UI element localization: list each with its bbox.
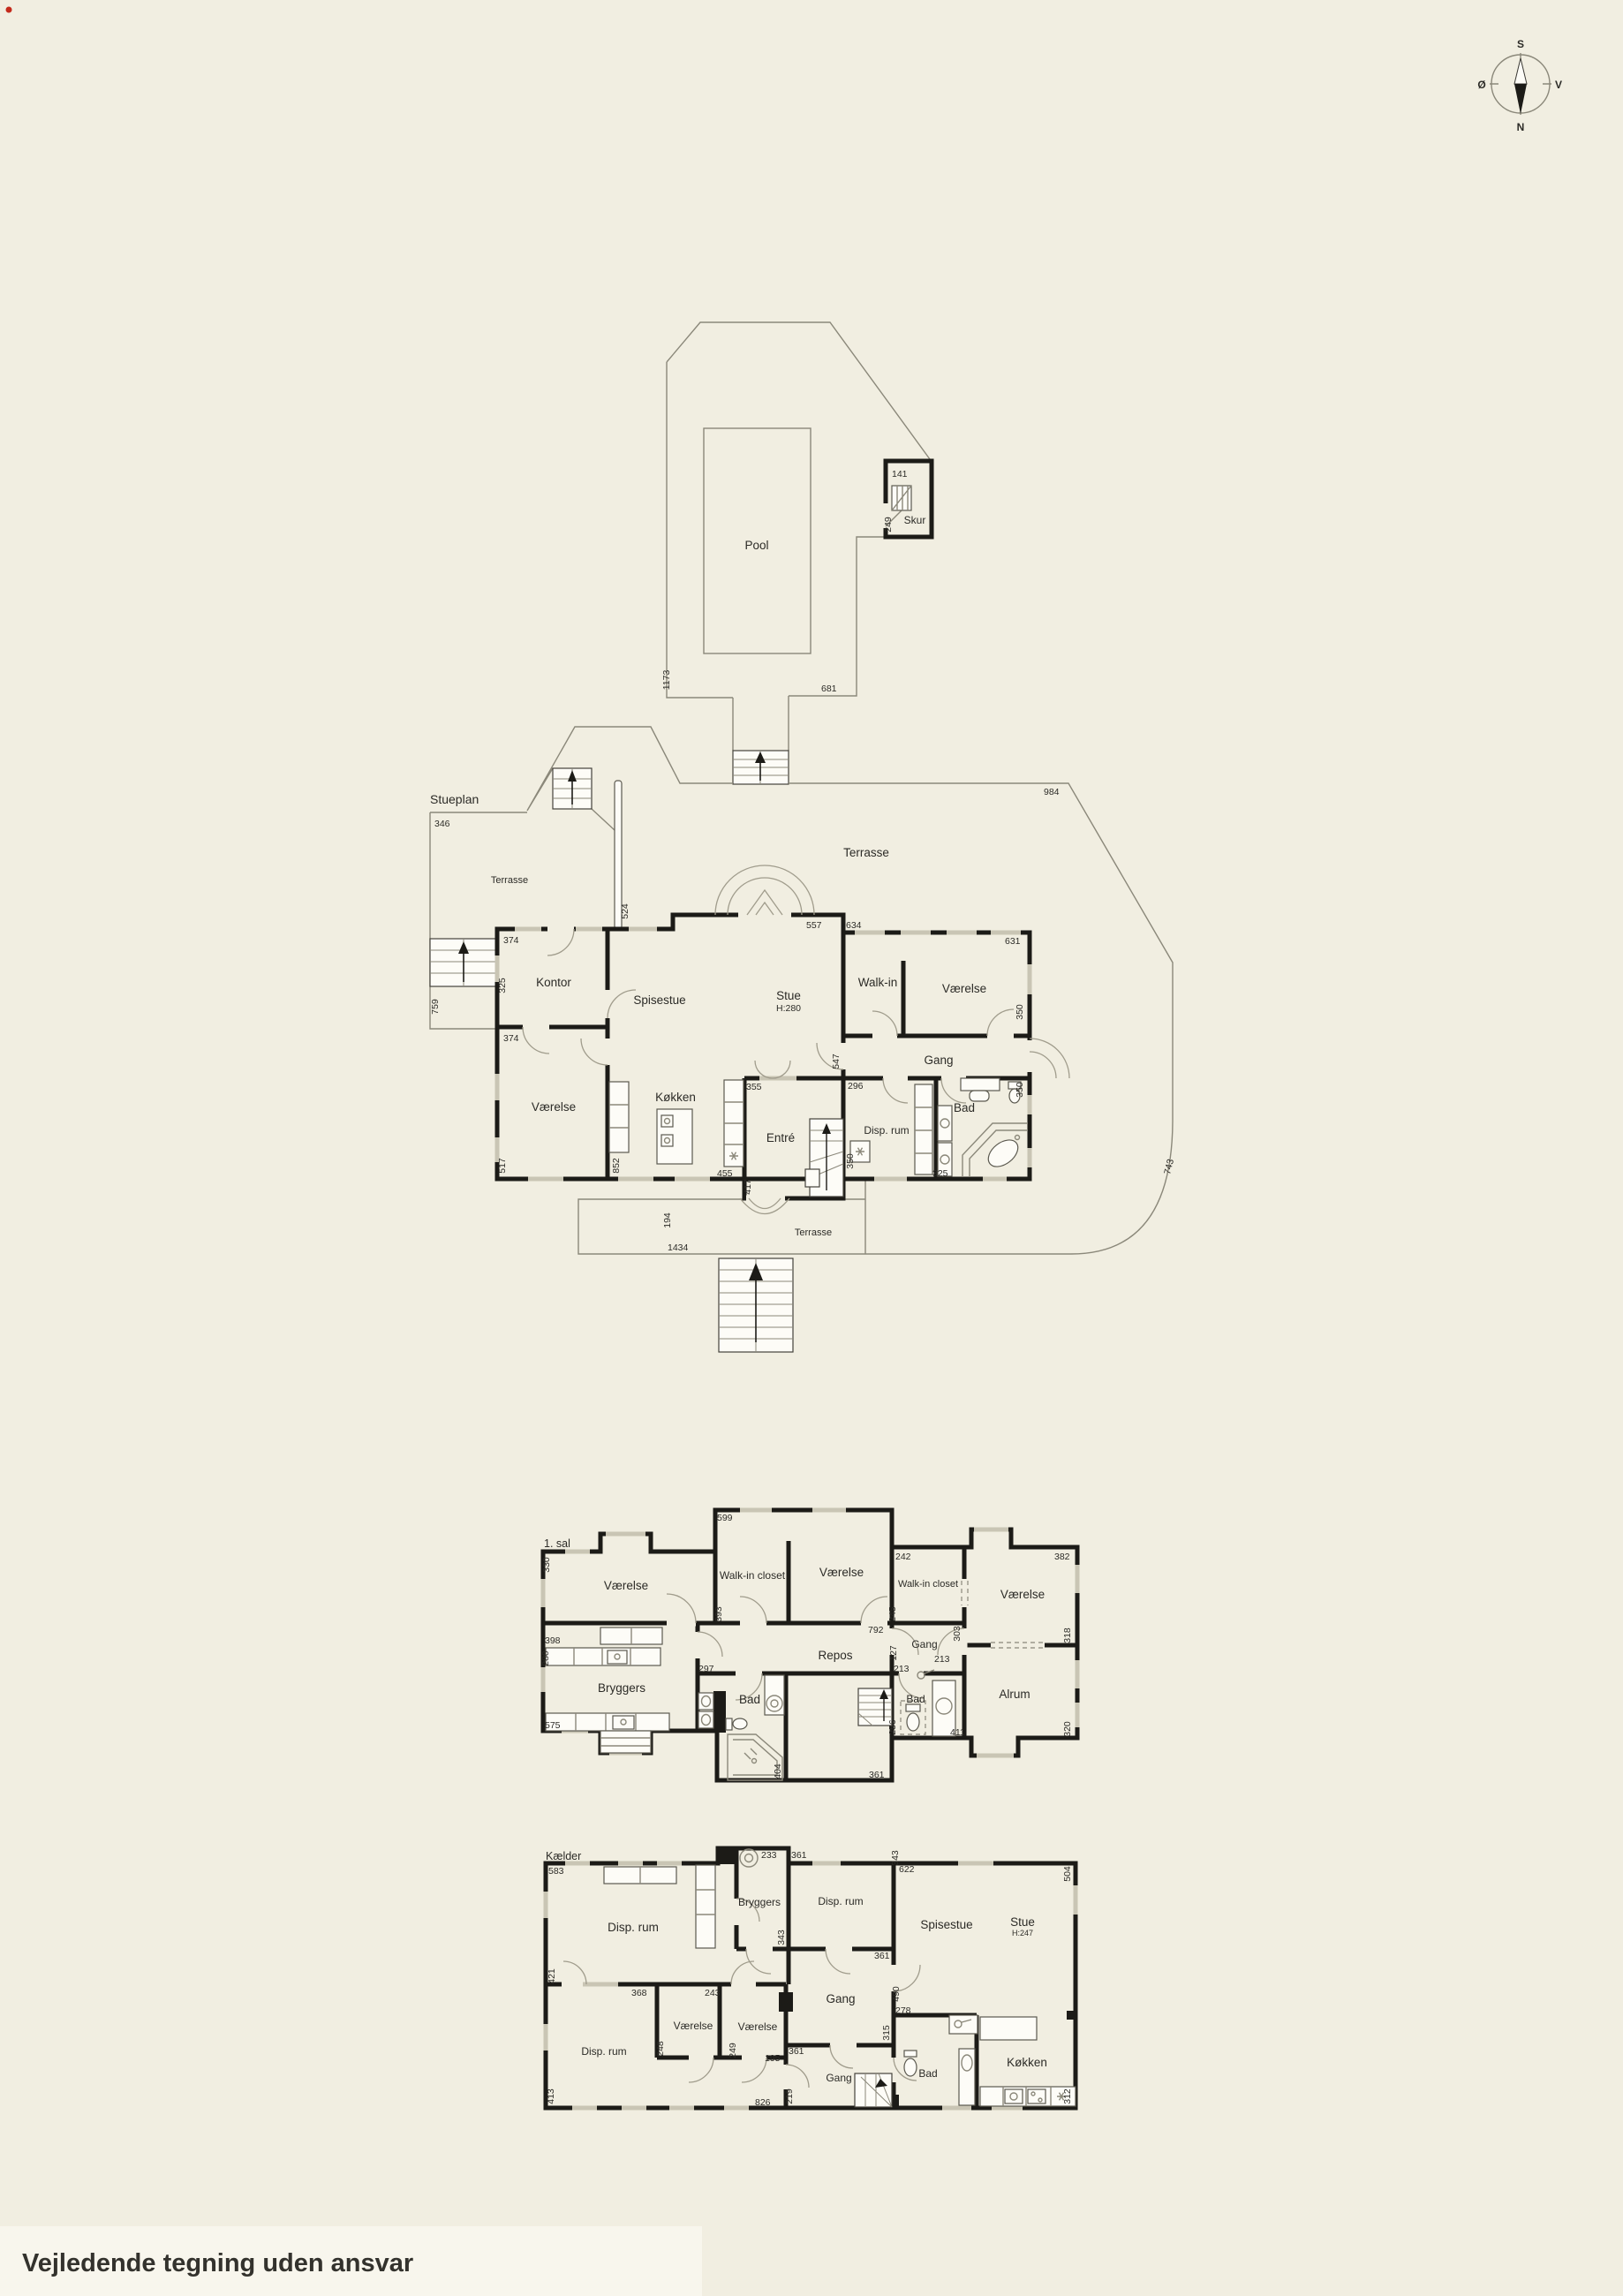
room-label-vaerelse-tc: Værelse <box>819 1566 864 1579</box>
dim-label: 1434 <box>668 1242 689 1253</box>
dim-label: 382 <box>1054 1552 1070 1562</box>
entre-stairs <box>805 1119 843 1197</box>
basement-stairs <box>855 2073 892 2107</box>
dim-label: 490 <box>891 1986 902 2002</box>
dim-label: 320 <box>1062 1721 1073 1737</box>
dim-label: 194 <box>662 1212 673 1228</box>
plan-title-1sal: 1. sal <box>544 1537 570 1550</box>
room-label-vaerelse-k1: Værelse <box>674 2020 713 2032</box>
room-label-disp-bl: Disp. rum <box>581 2045 626 2058</box>
dim-label: 312 <box>1062 2088 1073 2104</box>
dim-label: 792 <box>868 1625 884 1635</box>
room-label-vaerelse-tl: Værelse <box>604 1579 648 1592</box>
room-label-bad-center: Bad <box>739 1693 760 1706</box>
room-label-repos: Repos <box>818 1649 852 1662</box>
room-label-bryggers-1sal: Bryggers <box>598 1681 645 1695</box>
room-label-bad-right: Bad <box>906 1693 925 1705</box>
dim-label: 213 <box>934 1654 950 1665</box>
room-label-gang-1sal: Gang <box>911 1638 937 1650</box>
dim-label: 455 <box>717 1168 733 1179</box>
dim-label: 256 <box>887 1719 898 1735</box>
compass-needle-north <box>1514 84 1527 114</box>
dim-label: 374 <box>503 935 519 946</box>
room-label-vaerelse-k2: Værelse <box>738 2020 778 2033</box>
room-label-disp-rum: Disp. rum <box>864 1124 909 1137</box>
room-label-bad: Bad <box>954 1101 975 1114</box>
plan-title-kaelder: Kælder <box>546 1850 581 1862</box>
room-label-skur: Skur <box>904 514 926 526</box>
compass-rose: S N Ø V <box>1477 38 1562 133</box>
front-stairs <box>719 1258 793 1352</box>
dim-label: 141 <box>892 469 908 480</box>
room-label-kontor: Kontor <box>536 976 571 989</box>
dim-label: 303 <box>952 1626 962 1642</box>
dim-label: 557 <box>806 920 822 931</box>
dim-label: 634 <box>846 920 862 931</box>
room-label-spisestue-k: Spisestue <box>920 1918 972 1931</box>
dim-label: 296 <box>848 1081 864 1091</box>
dim-label: 547 <box>831 1054 842 1069</box>
basement-plan: Kælder Disp. rum Br <box>546 1848 1077 2108</box>
room-label-koekken-k: Køkken <box>1007 2056 1047 2069</box>
dim-label: 325 <box>932 1168 948 1179</box>
dim-label: 350 <box>845 1153 856 1169</box>
dim-label: 575 <box>545 1720 561 1731</box>
room-label-vaerelse-tr: Værelse <box>1000 1588 1045 1601</box>
dim-label: 248 <box>655 2041 666 2057</box>
dim-label: 219 <box>784 2088 795 2104</box>
dim-label: 350 <box>1015 1004 1025 1020</box>
room-height-stue: H:280 <box>776 1003 801 1014</box>
terrace-stairs-left <box>430 939 497 986</box>
dim-label: 330 <box>541 1557 552 1573</box>
room-label-spisestue: Spisestue <box>633 993 685 1007</box>
room-label-vaerelse-east: Værelse <box>942 982 986 995</box>
dim-label: 393 <box>713 1606 724 1622</box>
room-label-gang-upper: Gang <box>826 1992 855 2005</box>
dim-label: 242 <box>895 1552 911 1562</box>
dim-label: 361 <box>874 1951 890 1961</box>
dim-label: 599 <box>717 1513 733 1523</box>
compass-west-label: V <box>1555 79 1562 91</box>
room-height-stue-k: H:247 <box>1012 1929 1033 1937</box>
dim-label: 249 <box>883 517 894 532</box>
room-label-walkin-1: Walk-in closet <box>720 1569 786 1582</box>
room-label-terrasse-top: Terrasse <box>843 846 889 859</box>
bad-center-fixtures <box>698 1675 784 1780</box>
dim-label: 297 <box>698 1664 714 1674</box>
room-label-disp-tr: Disp. rum <box>818 1895 863 1907</box>
dim-label: 417 <box>743 1179 753 1195</box>
dim-label: 355 <box>746 1082 762 1092</box>
red-marker <box>6 7 12 13</box>
floorplan-drawing: S N Ø V Pool 141 249 Skur 1173 681 984 7… <box>0 0 1623 2296</box>
dim-label: 524 <box>620 903 630 919</box>
compass-north-label: N <box>1517 121 1525 133</box>
dim-label: 243 <box>705 1988 721 1998</box>
room-label-walkin-2: Walk-in closet <box>898 1579 958 1590</box>
stueplan-plan: Stueplan <box>430 768 1069 1352</box>
dim-label: 743 <box>1162 1158 1176 1175</box>
dim-label: 195 <box>765 2053 781 2064</box>
dim-label: 374 <box>503 1033 519 1044</box>
room-label-vaerelse-west: Værelse <box>532 1100 576 1114</box>
dim-label: 517 <box>497 1158 508 1174</box>
dim-label: 361 <box>869 1770 885 1780</box>
compass-needle-south <box>1514 58 1527 84</box>
room-label-pool: Pool <box>744 539 768 552</box>
terrace-stairs-top <box>553 768 592 809</box>
room-label-alrum: Alrum <box>999 1688 1030 1701</box>
room-label-walkin: Walk-in <box>858 976 898 989</box>
dim-label: 350 <box>1015 1082 1025 1098</box>
dim-label: 361 <box>789 2046 804 2057</box>
dim-label: 411 <box>950 1727 965 1738</box>
dim-label: 421 <box>547 1968 557 1984</box>
pool-stairs <box>733 751 789 784</box>
dim-label: 249 <box>728 2043 738 2058</box>
room-label-gang: Gang <box>924 1054 953 1067</box>
dim-label: 984 <box>1044 787 1060 797</box>
dim-label: 826 <box>755 2097 771 2108</box>
dim-label: 278 <box>895 2005 911 2016</box>
dim-label: 325 <box>497 978 508 993</box>
room-label-disp-tl: Disp. rum <box>608 1921 659 1934</box>
floorplan-page: S N Ø V Pool 141 249 Skur 1173 681 984 7… <box>0 0 1623 2296</box>
dim-label: 127 <box>888 1645 899 1661</box>
dim-label: 280 <box>540 1650 551 1666</box>
dim-label: 404 <box>773 1764 783 1779</box>
room-label-bryggers-k: Bryggers <box>738 1896 781 1908</box>
dim-label: 681 <box>821 684 837 694</box>
room-label-koekken: Køkken <box>655 1091 696 1104</box>
dim-label: 583 <box>548 1866 564 1877</box>
room-label-bad-k: Bad <box>918 2067 937 2080</box>
room-label-terrasse-front: Terrasse <box>795 1227 832 1238</box>
dim-label: 504 <box>1062 1866 1073 1882</box>
first-floor-plan: 1. sal <box>540 1510 1077 1780</box>
disclaimer-band: Vejledende tegning uden ansvar <box>0 2226 702 2296</box>
room-label-terrasse-left: Terrasse <box>491 875 528 886</box>
dim-label: 361 <box>791 1850 807 1861</box>
plan-title-stueplan: Stueplan <box>430 792 479 806</box>
disclaimer-text: Vejledende tegning uden ansvar <box>22 2249 413 2277</box>
dim-label: 343 <box>776 1930 787 1945</box>
dim-label: 398 <box>545 1635 561 1646</box>
dim-label: 245 <box>887 1606 898 1622</box>
room-label-entre: Entré <box>766 1131 795 1144</box>
compass-south-label: S <box>1517 38 1524 50</box>
room-label-stue-k: Stue <box>1010 1915 1035 1929</box>
room-label-gang-lower: Gang <box>826 2072 851 2084</box>
dim-label: 318 <box>1062 1628 1073 1643</box>
dim-label: 213 <box>894 1664 910 1674</box>
dim-label: 413 <box>546 2088 556 2104</box>
dim-label: 1173 <box>661 670 672 691</box>
dim-label: 759 <box>430 999 441 1015</box>
dim-label: 368 <box>631 1988 647 1998</box>
dim-label: 622 <box>899 1864 915 1875</box>
compass-east-label: Ø <box>1477 79 1485 91</box>
basement-fixtures <box>604 1849 1076 2106</box>
room-label-stue: Stue <box>776 989 801 1002</box>
dim-label: 233 <box>761 1850 777 1861</box>
dim-label: 631 <box>1005 936 1021 947</box>
dim-label: 315 <box>881 2025 892 2041</box>
dim-label: 852 <box>611 1158 622 1174</box>
dim-label: 346 <box>434 819 450 829</box>
